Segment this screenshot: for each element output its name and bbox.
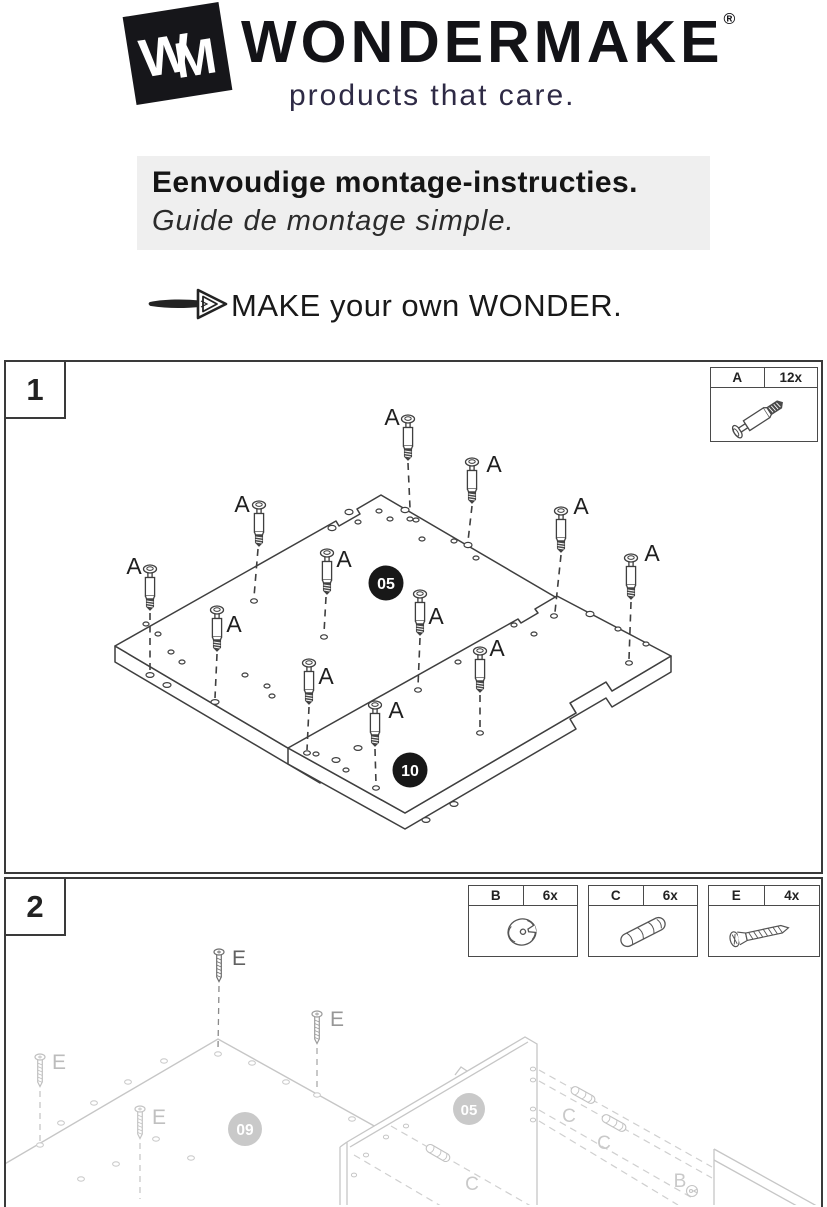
fastener-label: A (384, 404, 400, 430)
registered-mark: ® (723, 11, 735, 28)
fastener-label: A (489, 635, 505, 661)
arrow-icon (146, 283, 230, 325)
screw-icon (214, 949, 224, 982)
panel-05-upright (340, 1037, 537, 1205)
fastener-label: A (126, 553, 142, 579)
fastener-label: A (428, 603, 444, 629)
badge-09: 09 (228, 1112, 262, 1146)
part-c-label: C (589, 886, 643, 905)
instruction-banner: Eenvoudige montage-instructies. Guide de… (137, 156, 710, 250)
brand-name-text: WONDERMAKE (241, 9, 723, 75)
fastener-label: C (465, 1174, 479, 1195)
brand-tagline: products that care. (289, 79, 575, 113)
logo-monogram-m: M (171, 30, 220, 86)
fastener-label: A (388, 697, 404, 723)
part-e-quantity: 4x (764, 886, 820, 905)
dowel-icon (570, 1085, 597, 1105)
screw-icon (312, 1011, 322, 1044)
parts-legend-c: C 6x (588, 885, 698, 957)
brand-logo: W M (123, 2, 233, 105)
cam-bolt-icon (466, 458, 479, 503)
cam-lock-icon (469, 906, 577, 955)
svg-text:09: 09 (236, 1122, 254, 1139)
step-2-number: 2 (6, 879, 66, 936)
step-2-panel: 2 B 6x C 6x (4, 877, 823, 1207)
brand-name: WONDERMAKE® (241, 8, 735, 76)
badge-05-step2: 05 (453, 1093, 485, 1125)
badge-05: 05 (369, 566, 404, 601)
dowel-icon (589, 906, 697, 955)
fastener-label: E (232, 947, 246, 970)
part-c-quantity: 6x (643, 886, 698, 905)
step-1-number: 1 (6, 362, 66, 419)
fastener-label: A (644, 540, 660, 566)
cam-bolt-icon (625, 554, 638, 599)
parts-legend-b: B 6x (468, 885, 578, 957)
screw-icon (35, 1054, 45, 1087)
cam-bolt-icon (144, 565, 157, 610)
cam-lock-small (687, 1186, 698, 1197)
badge-10: 10 (393, 753, 428, 788)
fastener-label: A (318, 663, 334, 689)
svg-text:05: 05 (377, 576, 395, 593)
dowel-icon (601, 1113, 628, 1133)
part-b-label: B (469, 886, 523, 905)
screw-icon (709, 906, 819, 955)
assembly-diagram-step-2: 09 05 (6, 879, 821, 1205)
fastener-label: A (226, 611, 242, 637)
part-a-quantity: 12x (764, 368, 818, 387)
fastener-label: A (336, 546, 352, 572)
fastener-label: E (152, 1106, 166, 1129)
fastener-label: A (234, 491, 250, 517)
heading-dutch: Eenvoudige montage-instructies. (152, 166, 710, 200)
parts-legend-a: A 12x (710, 367, 818, 442)
cam-bolt-icon (402, 415, 415, 460)
slogan-text: MAKE your own WONDER. (231, 288, 622, 324)
cam-bolt-icon (711, 388, 817, 440)
assembly-diagram-step-1: A A A A A A A A A A A A 05 10 (6, 362, 821, 872)
cam-bolt-icon (253, 501, 266, 546)
fastener-label: E (52, 1051, 66, 1074)
fastener-label: C (597, 1133, 611, 1154)
step-1-panel: 1 A 12x (4, 360, 823, 874)
heading-french: Guide de montage simple. (152, 205, 710, 238)
fastener-label: C (562, 1106, 576, 1127)
fastener-label: A (486, 451, 502, 477)
svg-text:10: 10 (401, 763, 419, 780)
part-a-label: A (711, 368, 764, 387)
panel-far-right (714, 1149, 821, 1205)
fastener-label: E (330, 1008, 344, 1031)
part-e-label: E (709, 886, 764, 905)
parts-legend-e: E 4x (708, 885, 820, 957)
fastener-label: A (573, 493, 589, 519)
fastener-label: B (674, 1171, 687, 1192)
cam-bolt-icon (555, 507, 568, 552)
svg-text:05: 05 (461, 1102, 478, 1119)
part-b-quantity: 6x (523, 886, 578, 905)
